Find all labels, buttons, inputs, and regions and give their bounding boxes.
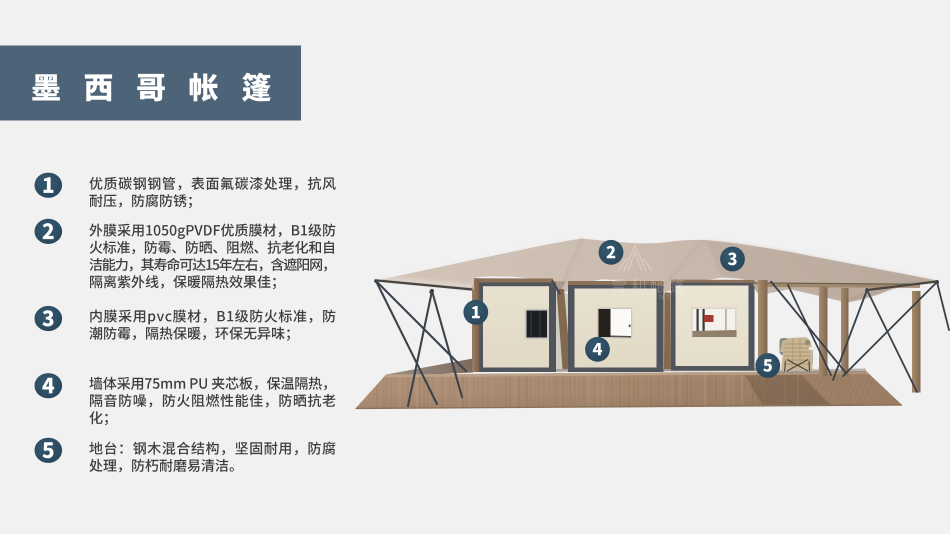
svg-text:XUELI TENT: XUELI TENT bbox=[612, 295, 672, 302]
